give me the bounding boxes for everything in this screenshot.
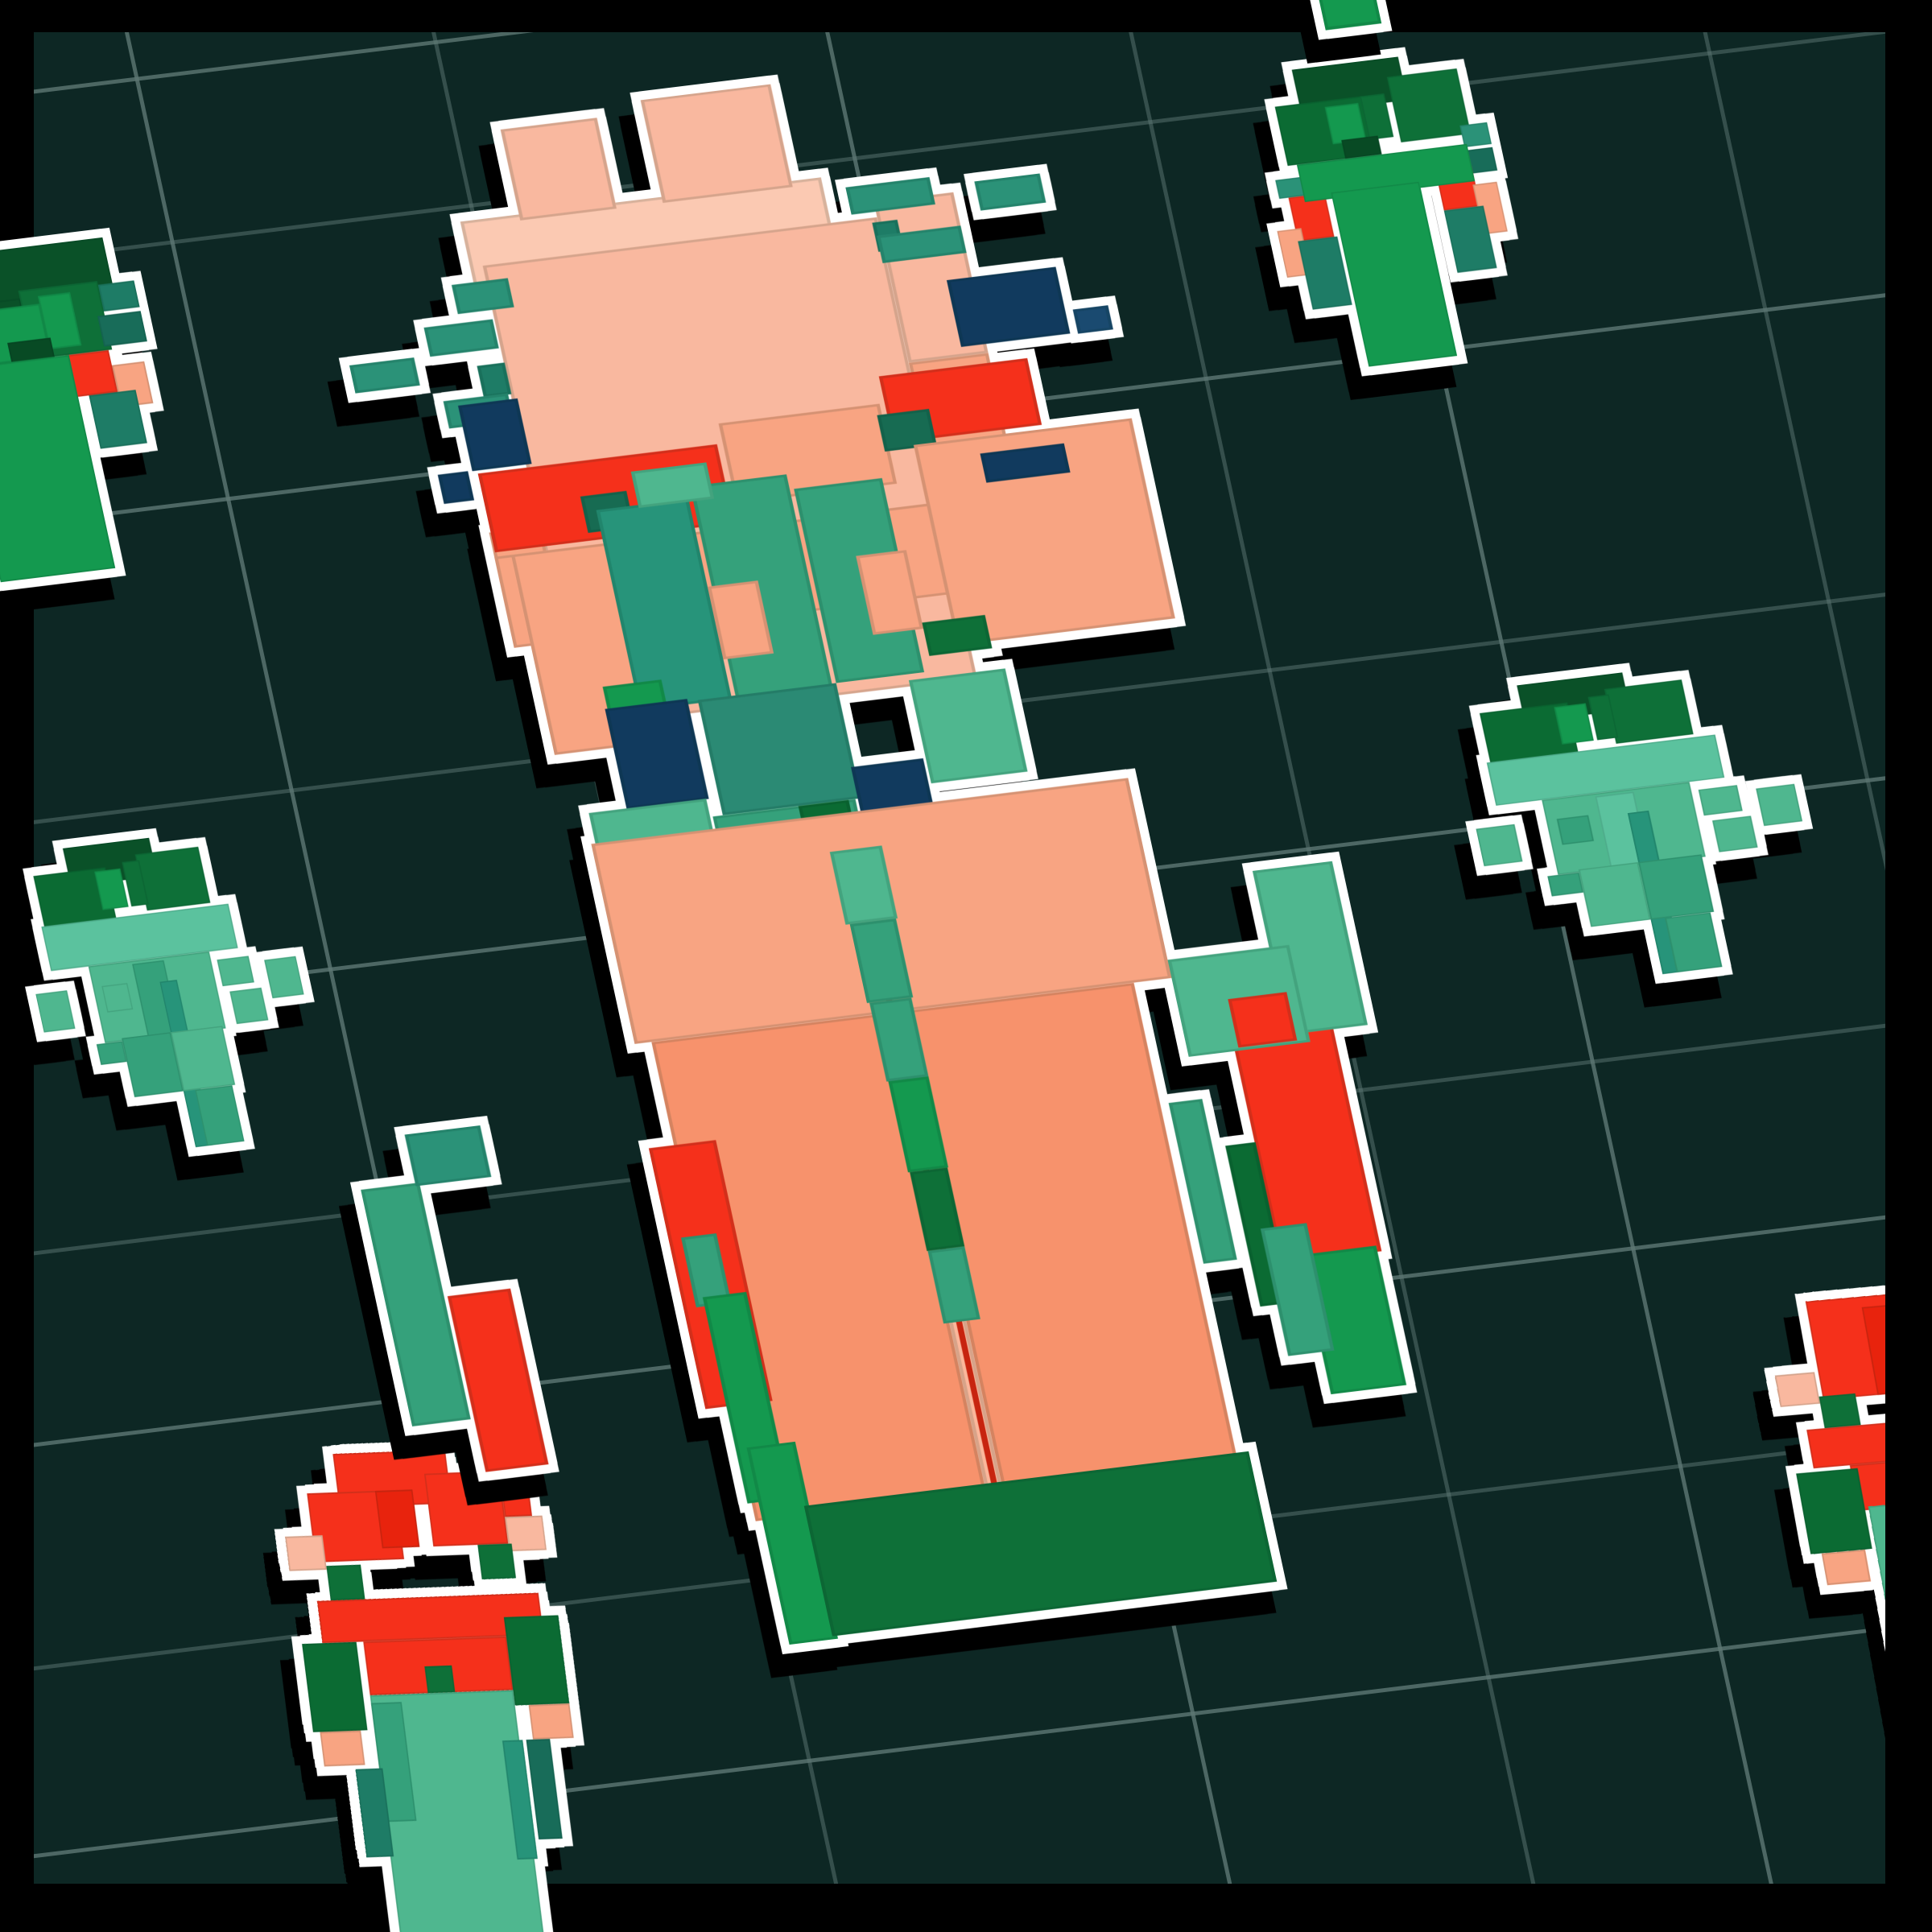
grid-line-vertical <box>960 32 1771 1884</box>
board-area <box>34 32 1885 1884</box>
grid-line-vertical <box>664 32 1476 1884</box>
grid-line-horizontal <box>34 832 1885 1303</box>
pixel-block <box>1302 0 1381 31</box>
pixel-block <box>1819 1393 1861 1428</box>
pixel-block <box>1822 1550 1871 1585</box>
pixel-block <box>1868 1492 1885 1724</box>
grid-line-horizontal <box>34 32 1885 335</box>
grid-line-vertical <box>1518 32 1885 1884</box>
artwork-canvas <box>0 0 1932 1932</box>
background-grid <box>34 32 1885 1884</box>
scene-layer-under-frame <box>34 32 1885 1866</box>
pixel-block <box>1850 1451 1885 1511</box>
pixel-block <box>1885 1595 1885 1724</box>
pixel-block <box>1806 1410 1885 1468</box>
grid-line-horizontal <box>34 32 1885 172</box>
pixel-block <box>1862 1303 1885 1395</box>
grid-line-horizontal <box>34 591 1885 1063</box>
pixel-block <box>1775 1372 1821 1407</box>
grid-line-vertical <box>1191 32 1885 1884</box>
grid-line-vertical <box>280 32 1092 1884</box>
grid-line-vertical <box>34 32 793 1884</box>
grid-line-horizontal <box>34 121 1885 592</box>
pixel-block <box>1806 1285 1885 1400</box>
grid-line-horizontal <box>34 1018 1885 1490</box>
grid-line-horizontal <box>34 1236 1885 1708</box>
pixel-block <box>0 299 34 372</box>
grid-line-horizontal <box>34 1419 1885 1884</box>
grid-line-horizontal <box>34 412 1885 884</box>
pixel-block <box>1796 1468 1872 1554</box>
